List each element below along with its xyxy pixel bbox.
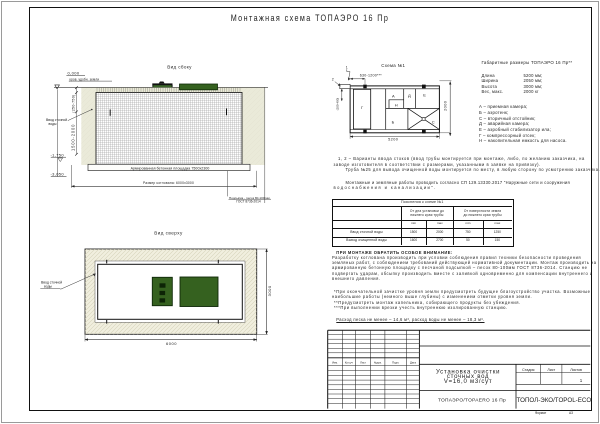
svg-text:воды: воды — [49, 122, 58, 126]
svg-text:А: А — [392, 93, 395, 98]
svg-text:Д: Д — [408, 93, 411, 98]
svg-text:6000: 6000 — [166, 341, 177, 346]
svg-text:Листов: Листов — [570, 368, 582, 372]
svg-text:2000: 2000 — [444, 101, 448, 111]
svg-text:уров. удобн. земли: уров. удобн. земли — [69, 77, 99, 81]
svg-text:Размер котлована: 6000х3000: Размер котлована: 6000х3000 — [143, 181, 194, 185]
svg-text:Б: Б — [392, 120, 395, 125]
svg-text:№док.: №док. — [374, 362, 382, 365]
svg-text:Кол.уч: Кол.уч — [345, 361, 354, 365]
svg-text:Е: Е — [423, 93, 426, 98]
svg-text:Подп.: Подп. — [392, 361, 399, 365]
svg-text:1500-2000: 1500-2000 — [71, 124, 76, 151]
svg-text:2: 2 — [332, 78, 334, 82]
svg-text:V=16,0 м3/сут: V=16,0 м3/сут — [444, 379, 492, 385]
svg-text:С: С — [432, 119, 435, 124]
svg-text:-1,750: -1,750 — [51, 152, 65, 157]
svg-text:ТОПОЛ-ЭКО/TOPOL-ECO: ТОПОЛ-ЭКО/TOPOL-ECO — [517, 397, 592, 404]
svg-text:1: 1 — [580, 378, 583, 383]
svg-text:Формат: Формат — [535, 411, 547, 415]
svg-text:Вид сверху: Вид сверху — [154, 231, 183, 236]
svg-text:Схема №1: Схема №1 — [381, 63, 405, 68]
svg-text:Стадия: Стадия — [522, 368, 534, 372]
svg-text:-3,050: -3,050 — [51, 172, 65, 177]
svg-text:3000: 3000 — [267, 285, 272, 296]
svg-text:Н: Н — [395, 103, 398, 108]
svg-text:630-1200***: 630-1200*** — [360, 73, 382, 77]
svg-text:Армированная бетонная площадка: Армированная бетонная площадка 7500х2300 — [131, 167, 210, 171]
svg-text:(100-400): (100-400) — [335, 98, 339, 111]
svg-text:(250-750): (250-750) — [72, 94, 76, 112]
svg-text:Изм.: Изм. — [332, 361, 338, 365]
svg-text:Лист: Лист — [360, 361, 367, 365]
svg-text:Вид сбоку: Вид сбоку — [167, 65, 192, 70]
svg-text:А3: А3 — [569, 411, 573, 415]
svg-text:0,000: 0,000 — [68, 71, 80, 76]
svg-text:Дата: Дата — [410, 361, 416, 365]
svg-text:Лист: Лист — [547, 368, 555, 372]
svg-text:5200: 5200 — [388, 138, 398, 142]
svg-text:ТОПАЭРО/TOPAERO 16 Пр: ТОПАЭРО/TOPAERO 16 Пр — [438, 398, 506, 404]
svg-text:воды: воды — [44, 285, 53, 289]
svg-text:ГОСТ 8736-2014: ГОСТ 8736-2014 — [236, 200, 261, 204]
svg-text:1: 1 — [346, 65, 348, 69]
